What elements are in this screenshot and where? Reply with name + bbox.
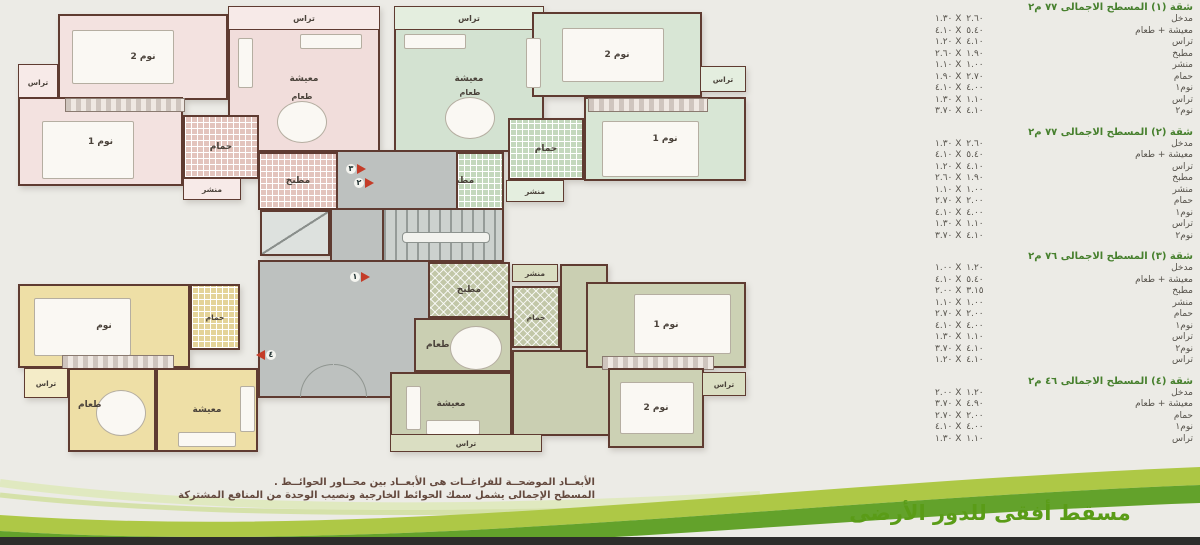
room-dimensions: ١.١٠ X ١.٠٠ xyxy=(935,185,984,197)
room-label: تراس xyxy=(28,78,48,87)
table-row: تراس ١.٢٠ X ٤.١٠ xyxy=(935,355,1193,367)
room-dimensions: ٤.١٠ X ٤.٠٠ xyxy=(935,83,984,95)
apt1-bathroom: حمام xyxy=(183,115,259,179)
table-row: تراس ١.٣٠ X ١.١٠ xyxy=(935,219,1193,231)
room-dimensions: ٢.٦٠ X ١.٩٠ xyxy=(935,49,984,61)
room-dimensions: ١.٢٠ X ٤.١٠ xyxy=(935,355,984,367)
room-name: مطبخ xyxy=(1172,49,1193,61)
room-dimensions: ١.٣٠ X ٢.٦٠ xyxy=(935,14,984,26)
apt3-table-rows: مدخل ١.٠٠ X ١.٢٠ معيشة + طعام ٤.١٠ X ٥.٤… xyxy=(935,263,1193,367)
apt1-top-terrace: تراس xyxy=(228,6,380,30)
arrow-right-icon xyxy=(361,272,370,282)
apt3-side-terrace: تراس xyxy=(702,372,746,396)
room-dimensions: ١.٢٠ X ٤.١٠ xyxy=(935,37,984,49)
room-name: مدخل xyxy=(1171,139,1193,151)
room-name: نوم١ xyxy=(1175,208,1193,220)
table-row: معيشة + طعام ٤.١٠ X ٥.٤٠ xyxy=(935,26,1193,38)
room-label: حمام xyxy=(527,313,546,322)
room-label: تراس xyxy=(293,14,315,23)
apt3-entrance-marker: ٣ xyxy=(346,164,366,174)
table-row: مطبخ ٢.٦٠ X ١.٩٠ xyxy=(935,49,1193,61)
marker-number: ٤ xyxy=(266,350,276,360)
sofa-icon xyxy=(426,420,480,435)
apt4-terrace: تراس xyxy=(24,368,68,398)
apt4-entrance-marker: ٤ xyxy=(256,350,276,360)
apt1-table: شقة (١) المسطح الاجمالى ٧٧ م٢ مدخل ١.٣٠ … xyxy=(935,2,1193,118)
brochure-page: { "page": { "background": "#ecebe6", "fo… xyxy=(0,0,1200,545)
apt2-table-title: شقة (٢) المسطح الاجمالى ٧٧ م٢ xyxy=(935,127,1193,138)
room-name: معيشة + طعام xyxy=(1135,26,1193,38)
room-dimensions: ١.٣٠ X ١.١٠ xyxy=(935,219,984,231)
room-dimensions: ١.٣٠ X ١.١٠ xyxy=(935,332,984,344)
room-name: مطبخ xyxy=(1172,173,1193,185)
room-name: مدخل xyxy=(1171,388,1193,400)
table-row: مدخل ١.٣٠ X ٢.٦٠ xyxy=(935,139,1193,151)
room-label: تراس xyxy=(458,14,480,23)
table-row: نوم١ ٤.١٠ X ٤.٠٠ xyxy=(935,83,1193,95)
room-label: نوم 2 xyxy=(130,52,155,62)
room-name: تراس xyxy=(1172,95,1193,107)
room-dimensions: ١.٣٠ X ١.١٠ xyxy=(935,95,984,107)
room-label: مطبخ xyxy=(457,285,482,295)
stair-handrail-icon xyxy=(402,232,490,243)
room-label: نوم 1 xyxy=(652,134,677,144)
apt1-laundry: منشر xyxy=(183,178,241,200)
room-label: معيشة xyxy=(290,74,319,84)
sofa-icon xyxy=(238,38,253,88)
marker-number: ٣ xyxy=(346,164,356,174)
closet-icon xyxy=(62,355,174,369)
room-dimensions: ٢.٠٠ X ٣.١٥ xyxy=(935,286,984,298)
table-row: معيشة + طعام ٣.٧٠ X ٤.٩٠ xyxy=(935,399,1193,411)
room-label: منشر xyxy=(525,187,545,196)
bed-icon xyxy=(34,298,131,356)
table-row: منشر ١.١٠ X ١.٠٠ xyxy=(935,185,1193,197)
room-name: نوم٢ xyxy=(1175,344,1193,356)
arrow-right-icon xyxy=(365,178,374,188)
elevator-icon xyxy=(260,210,330,256)
table-row: منشر ١.١٠ X ١.٠٠ xyxy=(935,298,1193,310)
arrow-right-icon xyxy=(357,164,366,174)
room-label: طعام xyxy=(292,92,313,101)
room-label: طعام xyxy=(78,400,102,410)
apt2-dining-zone: طعام xyxy=(420,88,520,146)
room-label: تراس xyxy=(713,75,733,84)
room-name: نوم١ xyxy=(1175,83,1193,95)
room-dimensions: ٤.١٠ X ٥.٤٠ xyxy=(935,26,984,38)
table-row: تراس ١.٢٠ X ٤.١٠ xyxy=(935,162,1193,174)
dimension-notes: الأبعــاد الموضحــة للفراغــات هى الأبعـ… xyxy=(175,476,595,502)
room-name: منشر xyxy=(1172,298,1193,310)
stair-landing xyxy=(330,208,384,262)
note-line-2: المسطح الإجمالى يشمل سمك الحوائط الخارجي… xyxy=(175,489,595,502)
table-row: تراس ١.٣٠ X ١.١٠ xyxy=(935,95,1193,107)
room-label: نوم 2 xyxy=(643,403,668,413)
bed-icon xyxy=(42,121,134,179)
sofa-icon xyxy=(300,34,362,49)
apt4-table-title: شقة (٤) المسطح الاجمالى ٤٦ م٢ xyxy=(935,376,1193,387)
room-name: معيشة + طعام xyxy=(1135,399,1193,411)
room-dimensions: ٤.١٠ X ٥.٤٠ xyxy=(935,275,984,287)
room-label: تراس xyxy=(714,380,734,389)
room-label: منشر xyxy=(525,269,545,278)
apt3-kitchen: مطبخ xyxy=(428,262,510,318)
sofa-icon xyxy=(240,386,255,432)
table-row: مدخل ٢.٠٠ X ١.٢٠ xyxy=(935,388,1193,400)
room-name: نوم١ xyxy=(1175,321,1193,333)
dimension-tables-panel: شقة (١) المسطح الاجمالى ٧٧ م٢ مدخل ١.٣٠ … xyxy=(935,2,1193,454)
marker-number: ١ xyxy=(350,272,360,282)
table-row: نوم٢ ٣.٧٠ X ٤.١٠ xyxy=(935,106,1193,118)
dining-table-icon xyxy=(445,97,495,139)
room-label: حمام xyxy=(210,142,233,152)
room-dimensions: ٣.٧٠ X ٤.٩٠ xyxy=(935,399,984,411)
stairs-icon xyxy=(382,208,504,262)
room-name: معيشة + طعام xyxy=(1135,275,1193,287)
apt3-dining: طعام xyxy=(414,318,512,372)
page-title: مسقط أفقى للدور الأرضى xyxy=(790,501,1190,525)
room-dimensions: ٢.٧٠ X ٢.٠٠ xyxy=(935,411,984,423)
table-row: تراس ١.٣٠ X ١.١٠ xyxy=(935,434,1193,446)
room-label: تراس xyxy=(456,439,476,448)
room-dimensions: ١.٠٠ X ١.٢٠ xyxy=(935,263,984,275)
sofa-icon xyxy=(178,432,236,447)
room-name: تراس xyxy=(1172,219,1193,231)
room-name: منشر xyxy=(1172,60,1193,72)
door-arc-icon xyxy=(300,364,333,397)
apt3-table: شقة (٣) المسطح الاجمالى ٧٦ م٢ مدخل ١.٠٠ … xyxy=(935,251,1193,367)
room-name: مدخل xyxy=(1171,14,1193,26)
room-dimensions: ١.٩٠ X ٢.٧٠ xyxy=(935,72,984,84)
room-name: حمام xyxy=(1174,72,1193,84)
table-row: تراس ١.٢٠ X ٤.١٠ xyxy=(935,37,1193,49)
room-label: نوم 1 xyxy=(88,137,113,147)
room-dimensions: ٣.٧٠ X ٤.١٠ xyxy=(935,106,984,118)
room-name: تراس xyxy=(1172,162,1193,174)
apt3-living: معيشة xyxy=(390,372,512,436)
apt4-bathroom: حمام xyxy=(190,284,240,350)
room-label: مطبخ xyxy=(286,176,311,186)
bottom-dark-strip xyxy=(0,537,1200,545)
room-label: حمام xyxy=(535,144,558,154)
sofa-icon xyxy=(404,34,466,49)
apt1-bedroom2: نوم 2 xyxy=(58,14,228,100)
room-dimensions: ٢.٦٠ X ١.٩٠ xyxy=(935,173,984,185)
closet-icon xyxy=(65,98,185,112)
room-name: حمام xyxy=(1174,309,1193,321)
apt4-dining: طعام xyxy=(68,368,156,452)
apt2-table: شقة (٢) المسطح الاجمالى ٧٧ م٢ مدخل ١.٣٠ … xyxy=(935,127,1193,243)
room-label: منشر xyxy=(202,185,222,194)
table-row: نوم١ ٤.١٠ X ٤.٠٠ xyxy=(935,321,1193,333)
apt3-laundry: منشر xyxy=(512,264,558,282)
room-label: طعام xyxy=(460,88,481,97)
door-arc-icon xyxy=(334,364,367,397)
sofa-icon xyxy=(406,386,421,430)
table-row: نوم٢ ٣.٧٠ X ٤.١٠ xyxy=(935,344,1193,356)
apt1-dining-zone: طعام xyxy=(252,92,352,150)
table-row: حمام ٢.٧٠ X ٢.٠٠ xyxy=(935,411,1193,423)
apt1-kitchen: مطبخ xyxy=(258,152,338,210)
table-row: مطبخ ٢.٠٠ X ٣.١٥ xyxy=(935,286,1193,298)
apt4-table: شقة (٤) المسطح الاجمالى ٤٦ م٢ مدخل ٢.٠٠ … xyxy=(935,376,1193,446)
apt1-bedroom1: نوم 1 xyxy=(18,97,183,186)
table-row: تراس ١.٣٠ X ١.١٠ xyxy=(935,332,1193,344)
bed-icon xyxy=(72,30,174,84)
table-row: حمام ٢.٧٠ X ٢.٠٠ xyxy=(935,196,1193,208)
room-dimensions: ١.١٠ X ١.٠٠ xyxy=(935,298,984,310)
room-label: معيشة xyxy=(437,399,466,409)
closet-icon xyxy=(588,98,708,112)
room-label: طعام xyxy=(426,340,450,350)
room-name: تراس xyxy=(1172,37,1193,49)
apt3-bottom-terrace: تراس xyxy=(390,434,542,452)
room-name: معيشة + طعام xyxy=(1135,150,1193,162)
room-dimensions: ١.٣٠ X ٢.٦٠ xyxy=(935,139,984,151)
table-row: حمام ١.٩٠ X ٢.٧٠ xyxy=(935,72,1193,84)
room-name: نوم٢ xyxy=(1175,106,1193,118)
room-dimensions: ٤.١٠ X ٤.٠٠ xyxy=(935,422,984,434)
table-row: معيشة + طعام ٤.١٠ X ٥.٤٠ xyxy=(935,275,1193,287)
apt3-table-title: شقة (٣) المسطح الاجمالى ٧٦ م٢ xyxy=(935,251,1193,262)
table-row: نوم١ ٤.١٠ X ٤.٠٠ xyxy=(935,422,1193,434)
apt1-side-terrace: تراس xyxy=(18,64,58,100)
room-dimensions: ٢.٧٠ X ٢.٠٠ xyxy=(935,196,984,208)
apt2-table-rows: مدخل ١.٣٠ X ٢.٦٠ معيشة + طعام ٤.١٠ X ٥.٤… xyxy=(935,139,1193,243)
room-name: تراس xyxy=(1172,434,1193,446)
table-row: مدخل ١.٣٠ X ٢.٦٠ xyxy=(935,14,1193,26)
marker-number: ٢ xyxy=(354,178,364,188)
table-row: نوم١ ٤.١٠ X ٤.٠٠ xyxy=(935,208,1193,220)
room-dimensions: ٢.٧٠ X ٢.٠٠ xyxy=(935,309,984,321)
room-name: تراس xyxy=(1172,332,1193,344)
room-label: معيشة xyxy=(455,74,484,84)
room-dimensions: ٤.١٠ X ٥.٤٠ xyxy=(935,150,984,162)
room-label: نوم 2 xyxy=(604,50,629,60)
room-dimensions: ٤.١٠ X ٤.٠٠ xyxy=(935,321,984,333)
apt3-bedroom2: نوم 2 xyxy=(608,368,704,448)
table-row: نوم٢ ٣.٧٠ X ٤.١٠ xyxy=(935,231,1193,243)
apt3-bedroom1: نوم 1 xyxy=(586,282,746,368)
room-label: معيشة xyxy=(193,405,222,415)
room-label: نوم xyxy=(96,321,112,331)
room-dimensions: ١.٣٠ X ١.١٠ xyxy=(935,434,984,446)
room-label: تراس xyxy=(36,379,56,388)
dining-table-icon xyxy=(96,390,146,436)
room-dimensions: ٢.٠٠ X ١.٢٠ xyxy=(935,388,984,400)
room-label: نوم 1 xyxy=(653,320,678,330)
sofa-icon xyxy=(526,38,541,88)
table-row: حمام ٢.٧٠ X ٢.٠٠ xyxy=(935,309,1193,321)
room-name: تراس xyxy=(1172,355,1193,367)
apt4-bedroom: نوم xyxy=(18,284,190,368)
apt2-bedroom2: نوم 2 xyxy=(532,12,702,97)
apt4-living: معيشة xyxy=(156,368,258,452)
arrow-left-icon xyxy=(256,350,265,360)
table-row: مدخل ١.٠٠ X ١.٢٠ xyxy=(935,263,1193,275)
apt4-table-rows: مدخل ٢.٠٠ X ١.٢٠ معيشة + طعام ٣.٧٠ X ٤.٩… xyxy=(935,388,1193,446)
room-name: منشر xyxy=(1172,185,1193,197)
room-name: حمام xyxy=(1174,411,1193,423)
room-name: حمام xyxy=(1174,196,1193,208)
room-dimensions: ٣.٧٠ X ٤.١٠ xyxy=(935,344,984,356)
dining-table-icon xyxy=(277,101,327,143)
apt1-entrance-marker: ١ xyxy=(350,272,370,282)
apt2-laundry: منشر xyxy=(506,180,564,202)
apt1-table-rows: مدخل ١.٣٠ X ٢.٦٠ معيشة + طعام ٤.١٠ X ٥.٤… xyxy=(935,14,1193,118)
room-dimensions: ١.٢٠ X ٤.١٠ xyxy=(935,162,984,174)
room-name: نوم١ xyxy=(1175,422,1193,434)
table-row: مطبخ ٢.٦٠ X ١.٩٠ xyxy=(935,173,1193,185)
room-dimensions: ١.١٠ X ١.٠٠ xyxy=(935,60,984,72)
room-name: مدخل xyxy=(1171,263,1193,275)
apt3-bathroom: حمام xyxy=(512,286,560,348)
room-label: حمام xyxy=(206,313,225,322)
room-name: مطبخ xyxy=(1172,286,1193,298)
dining-table-icon xyxy=(450,326,502,370)
room-dimensions: ٣.٧٠ X ٤.١٠ xyxy=(935,231,984,243)
table-row: منشر ١.١٠ X ١.٠٠ xyxy=(935,60,1193,72)
apt2-bedroom1: نوم 1 xyxy=(584,97,746,181)
table-row: معيشة + طعام ٤.١٠ X ٥.٤٠ xyxy=(935,150,1193,162)
apt2-entrance-marker: ٢ xyxy=(354,178,374,188)
note-line-1: الأبعــاد الموضحــة للفراغــات هى الأبعـ… xyxy=(175,476,595,489)
apt2-top-terrace: تراس xyxy=(394,6,544,30)
bed-icon xyxy=(634,294,731,354)
apt1-table-title: شقة (١) المسطح الاجمالى ٧٧ م٢ xyxy=(935,2,1193,13)
bed-icon xyxy=(602,121,699,177)
room-dimensions: ٤.١٠ X ٤.٠٠ xyxy=(935,208,984,220)
room-name: نوم٢ xyxy=(1175,231,1193,243)
apt2-side-terrace: تراس xyxy=(700,66,746,92)
